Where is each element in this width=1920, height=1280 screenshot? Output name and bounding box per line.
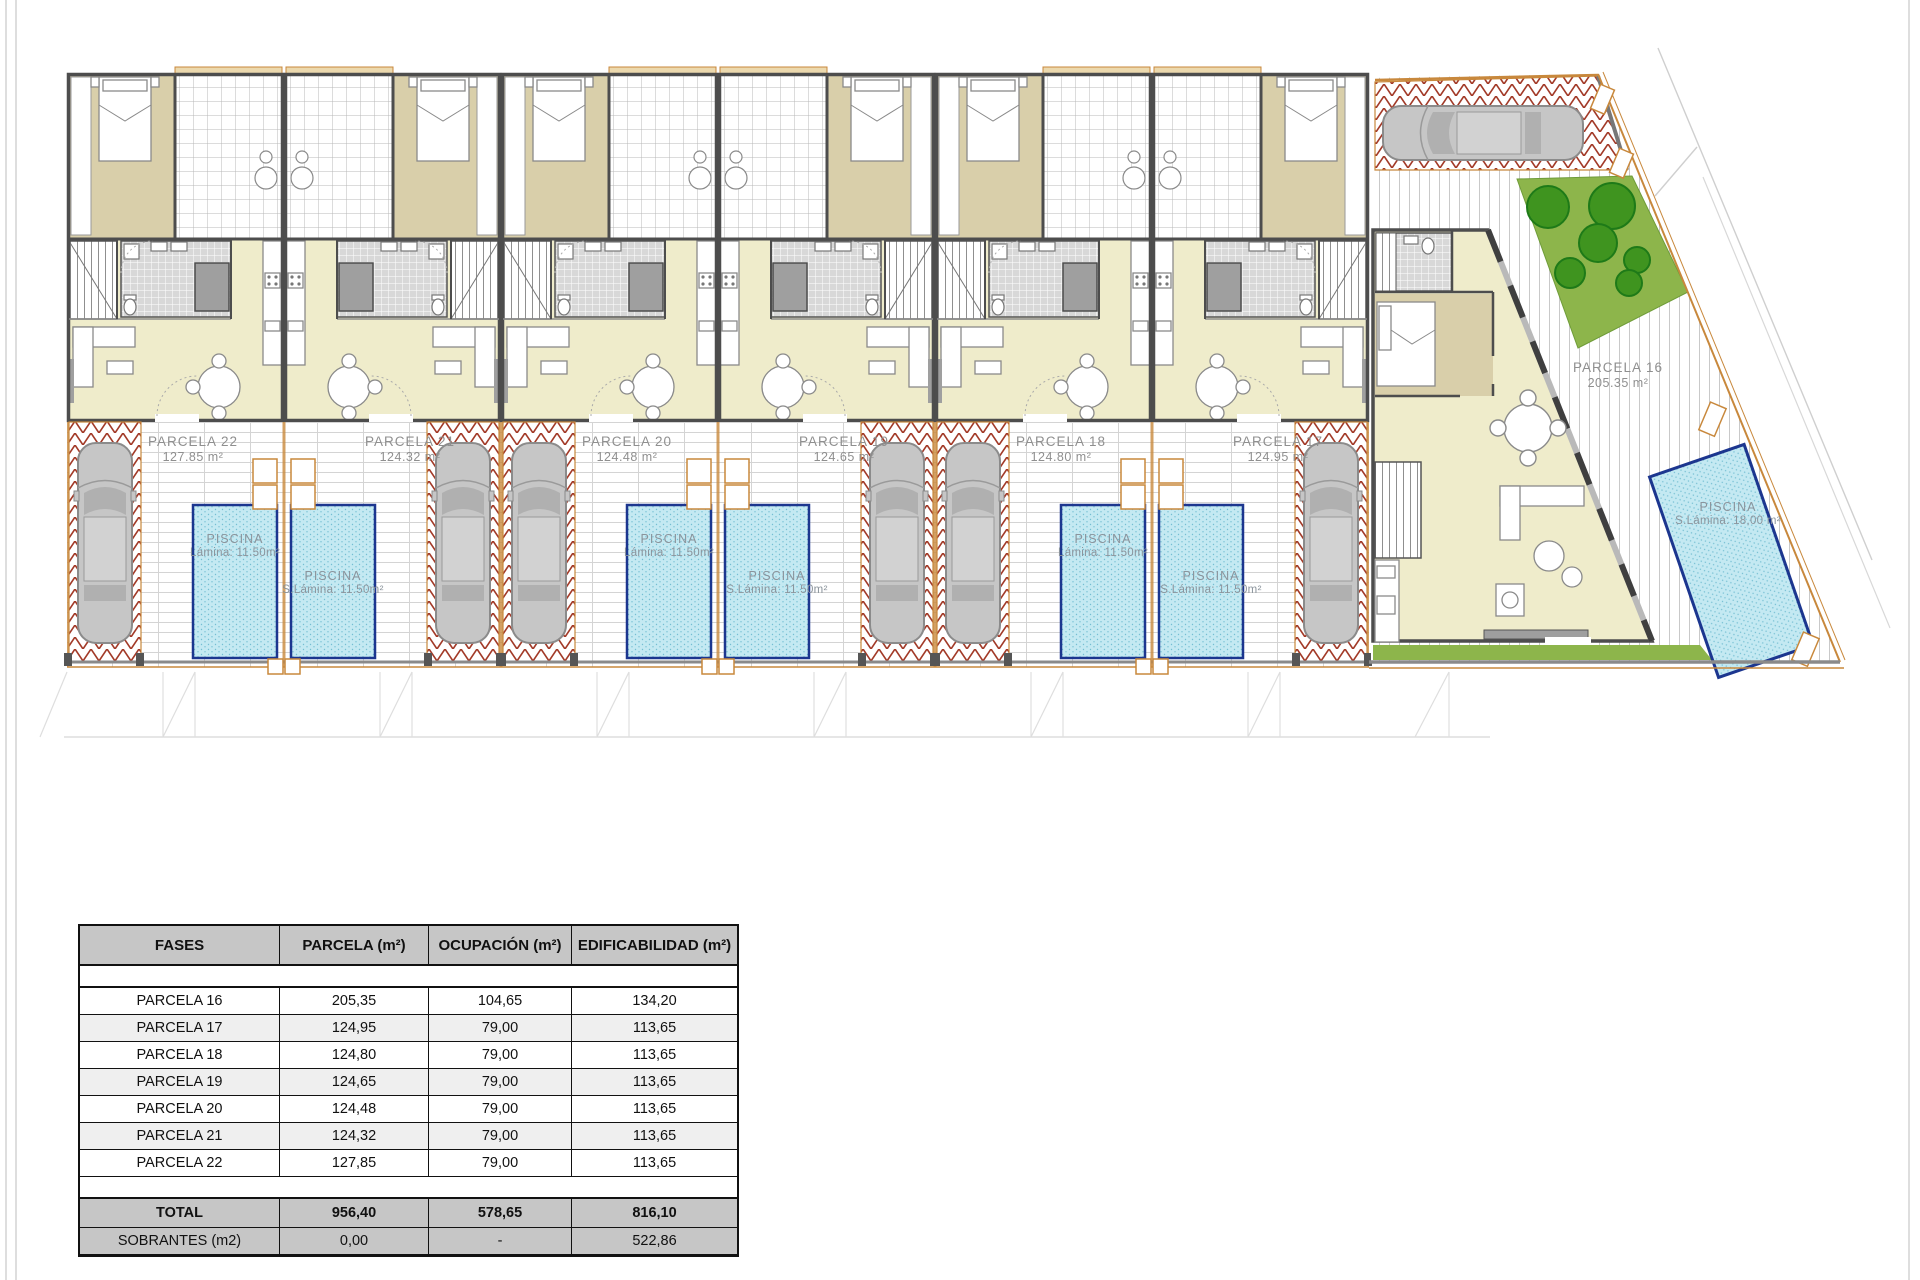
pool-label-19: PISCINAS.Lámina: 11.50m²: [726, 569, 827, 597]
table-row-label: PARCELA 17: [80, 1015, 280, 1042]
parcel-label-21: PARCELA 21124.32 m²: [365, 434, 455, 465]
table-cell: 113,65: [572, 1042, 737, 1069]
stairs16: [1375, 462, 1421, 558]
table-row-label: PARCELA 20: [80, 1096, 280, 1123]
table-cell: 0,00: [280, 1228, 429, 1255]
table-row-label: PARCELA 21: [80, 1123, 280, 1150]
table-header-fases: FASES: [80, 926, 280, 966]
pool-label-20: PISCINALámina: 11.50m²: [624, 532, 714, 560]
table-cell: 79,00: [429, 1042, 572, 1069]
table-cell: 113,65: [572, 1123, 737, 1150]
table-row-label: PARCELA 22: [80, 1150, 280, 1177]
table-cell: 79,00: [429, 1096, 572, 1123]
pool-label-17: PISCINAS.Lámina: 11.50m²: [1160, 569, 1261, 597]
table-sobrantes-label: SOBRANTES (m2): [80, 1228, 280, 1255]
parcel-label-20: PARCELA 20124.48 m²: [582, 434, 672, 465]
bed-icon: [1377, 302, 1435, 386]
table-header-edificabilidad: EDIFICABILIDAD (m²): [572, 926, 737, 966]
table-spacer: [80, 1177, 737, 1199]
pool-label-21: PISCINAS.Lámina: 11.50m²: [282, 569, 383, 597]
table-cell: 124,65: [280, 1069, 429, 1096]
table-cell: 124,48: [280, 1096, 429, 1123]
table-cell: 79,00: [429, 1150, 572, 1177]
unit-parcela-20: [498, 67, 718, 674]
unit-parcela-22: [64, 67, 284, 674]
areas-table: FASES PARCELA (m²) OCUPACIÓN (m²) EDIFIC…: [78, 924, 739, 1257]
table-cell: 79,00: [429, 1123, 572, 1150]
table-cell: 956,40: [280, 1199, 429, 1228]
parcel-label-22: PARCELA 22127.85 m²: [148, 434, 238, 465]
pool-label-18: PISCINALámina: 11.50m²: [1058, 532, 1148, 560]
table-cell: 816,10: [572, 1199, 737, 1228]
table-cell: 578,65: [429, 1199, 572, 1228]
table-spacer: [80, 966, 737, 988]
table-cell: -: [429, 1228, 572, 1255]
kitchen16: [1375, 560, 1399, 642]
table-header-ocupacion: OCUPACIÓN (m²): [429, 926, 572, 966]
parcel-label-19: PARCELA 19124.65 m²: [799, 434, 889, 465]
parcel-label-16: PARCELA 16205.35 m²: [1573, 360, 1663, 391]
table-cell: 205,35: [280, 988, 429, 1015]
table-cell: 113,65: [572, 1150, 737, 1177]
unit-parcela-18: [932, 67, 1152, 674]
table-header-parcela: PARCELA (m²): [280, 926, 429, 966]
parcel-label-18: PARCELA 18124.80 m²: [1016, 434, 1106, 465]
table-cell: 113,65: [572, 1015, 737, 1042]
car-icon: [1383, 106, 1583, 160]
table-row-label: PARCELA 18: [80, 1042, 280, 1069]
parcel-label-17: PARCELA 17124.95 m²: [1233, 434, 1323, 465]
guide-lines: [40, 672, 1490, 737]
table-cell: 134,20: [572, 988, 737, 1015]
table-row-label: PARCELA 19: [80, 1069, 280, 1096]
page: PARCELA 22127.85 m² PARCELA 21124.32 m² …: [0, 0, 1920, 1280]
table-cell: 113,65: [572, 1069, 737, 1096]
table-cell: 104,65: [429, 988, 572, 1015]
table-cell: 522,86: [572, 1228, 737, 1255]
table-cell: 79,00: [429, 1069, 572, 1096]
pool-label-16: PISCINAS.Lámina: 18,00 m²: [1675, 500, 1781, 528]
table-total-label: TOTAL: [80, 1199, 280, 1228]
green-strip: [1373, 645, 1712, 660]
table-cell: 113,65: [572, 1096, 737, 1123]
table-row-label: PARCELA 16: [80, 988, 280, 1015]
table-cell: 124,95: [280, 1015, 429, 1042]
table-cell: 124,32: [280, 1123, 429, 1150]
table-cell: 79,00: [429, 1015, 572, 1042]
pool-label-22: PISCINALámina: 11.50m²: [190, 532, 280, 560]
table-cell: 124,80: [280, 1042, 429, 1069]
table-cell: 127,85: [280, 1150, 429, 1177]
